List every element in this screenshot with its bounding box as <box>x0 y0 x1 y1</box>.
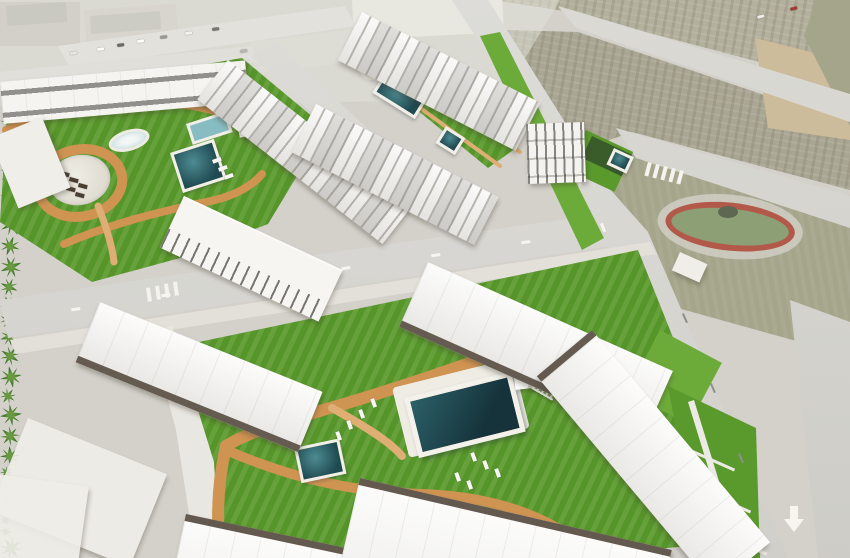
path-c3-pool-branch <box>332 408 402 456</box>
aerial-development-render <box>0 0 850 558</box>
road-arrow <box>784 506 804 532</box>
building-villa <box>526 122 586 184</box>
